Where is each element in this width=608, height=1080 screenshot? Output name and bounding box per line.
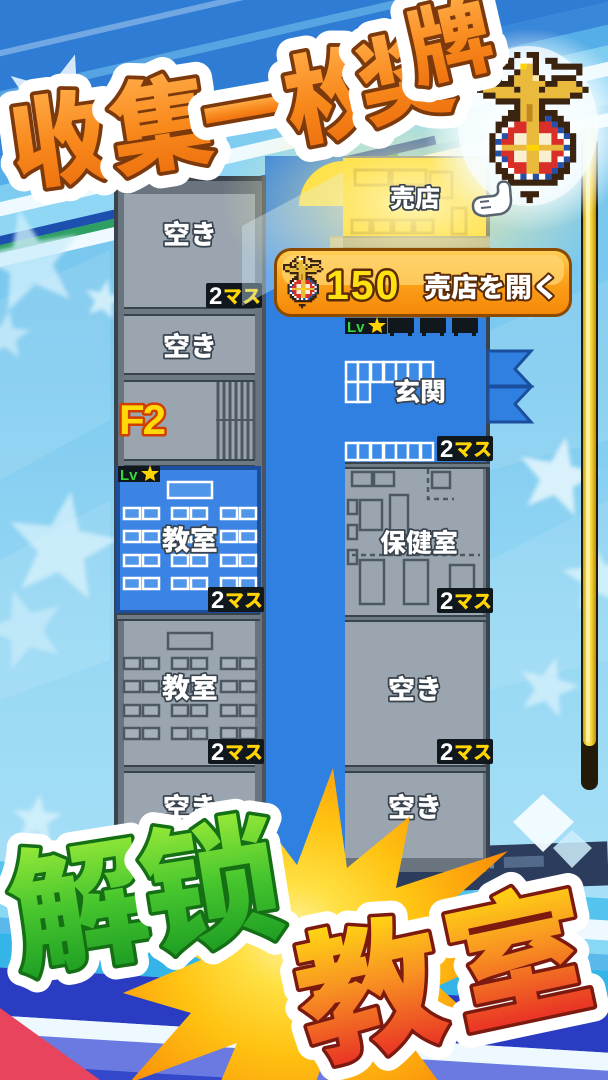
svg-text:150: 150	[326, 262, 400, 308]
svg-text:2: 2	[211, 739, 224, 766]
svg-text:2: 2	[209, 283, 222, 310]
svg-text:2: 2	[440, 739, 453, 766]
svg-text:2: 2	[211, 587, 224, 614]
svg-text:2: 2	[440, 588, 453, 615]
svg-text:F2: F2	[119, 396, 165, 443]
svg-text:Lv: Lv	[120, 467, 138, 484]
svg-text:2: 2	[440, 436, 453, 463]
svg-text:Lv: Lv	[347, 319, 365, 336]
